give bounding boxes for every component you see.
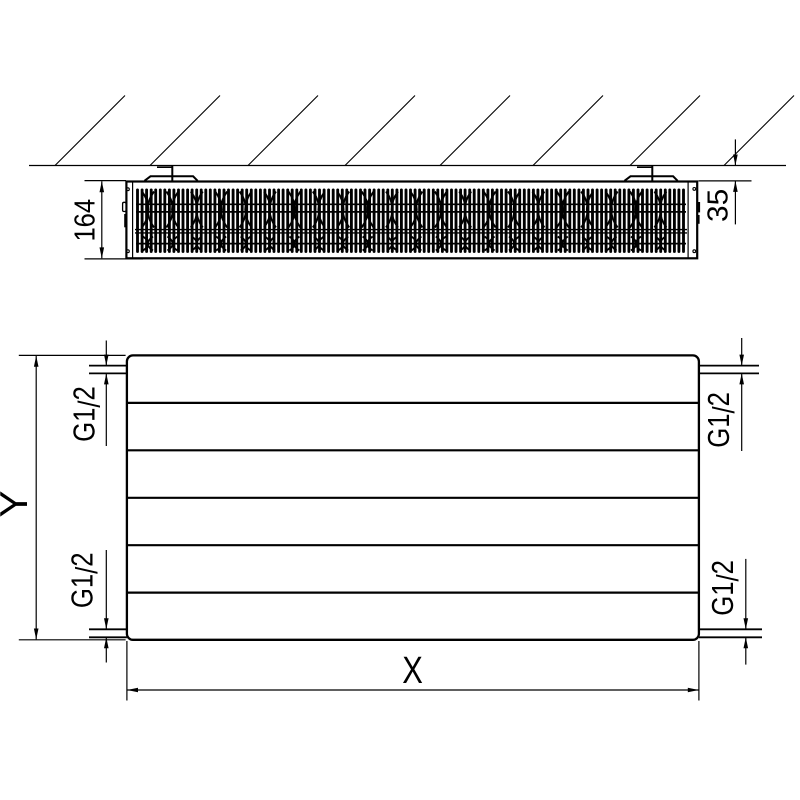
- svg-text:X: X: [402, 649, 423, 691]
- svg-text:G1/2: G1/2: [702, 392, 741, 448]
- svg-text:35: 35: [703, 189, 735, 222]
- svg-text:G1/2: G1/2: [68, 386, 107, 442]
- svg-text:G1/2: G1/2: [706, 560, 745, 616]
- svg-text:164: 164: [69, 199, 101, 242]
- svg-text:Y: Y: [0, 491, 36, 518]
- svg-text:G1/2: G1/2: [65, 552, 104, 608]
